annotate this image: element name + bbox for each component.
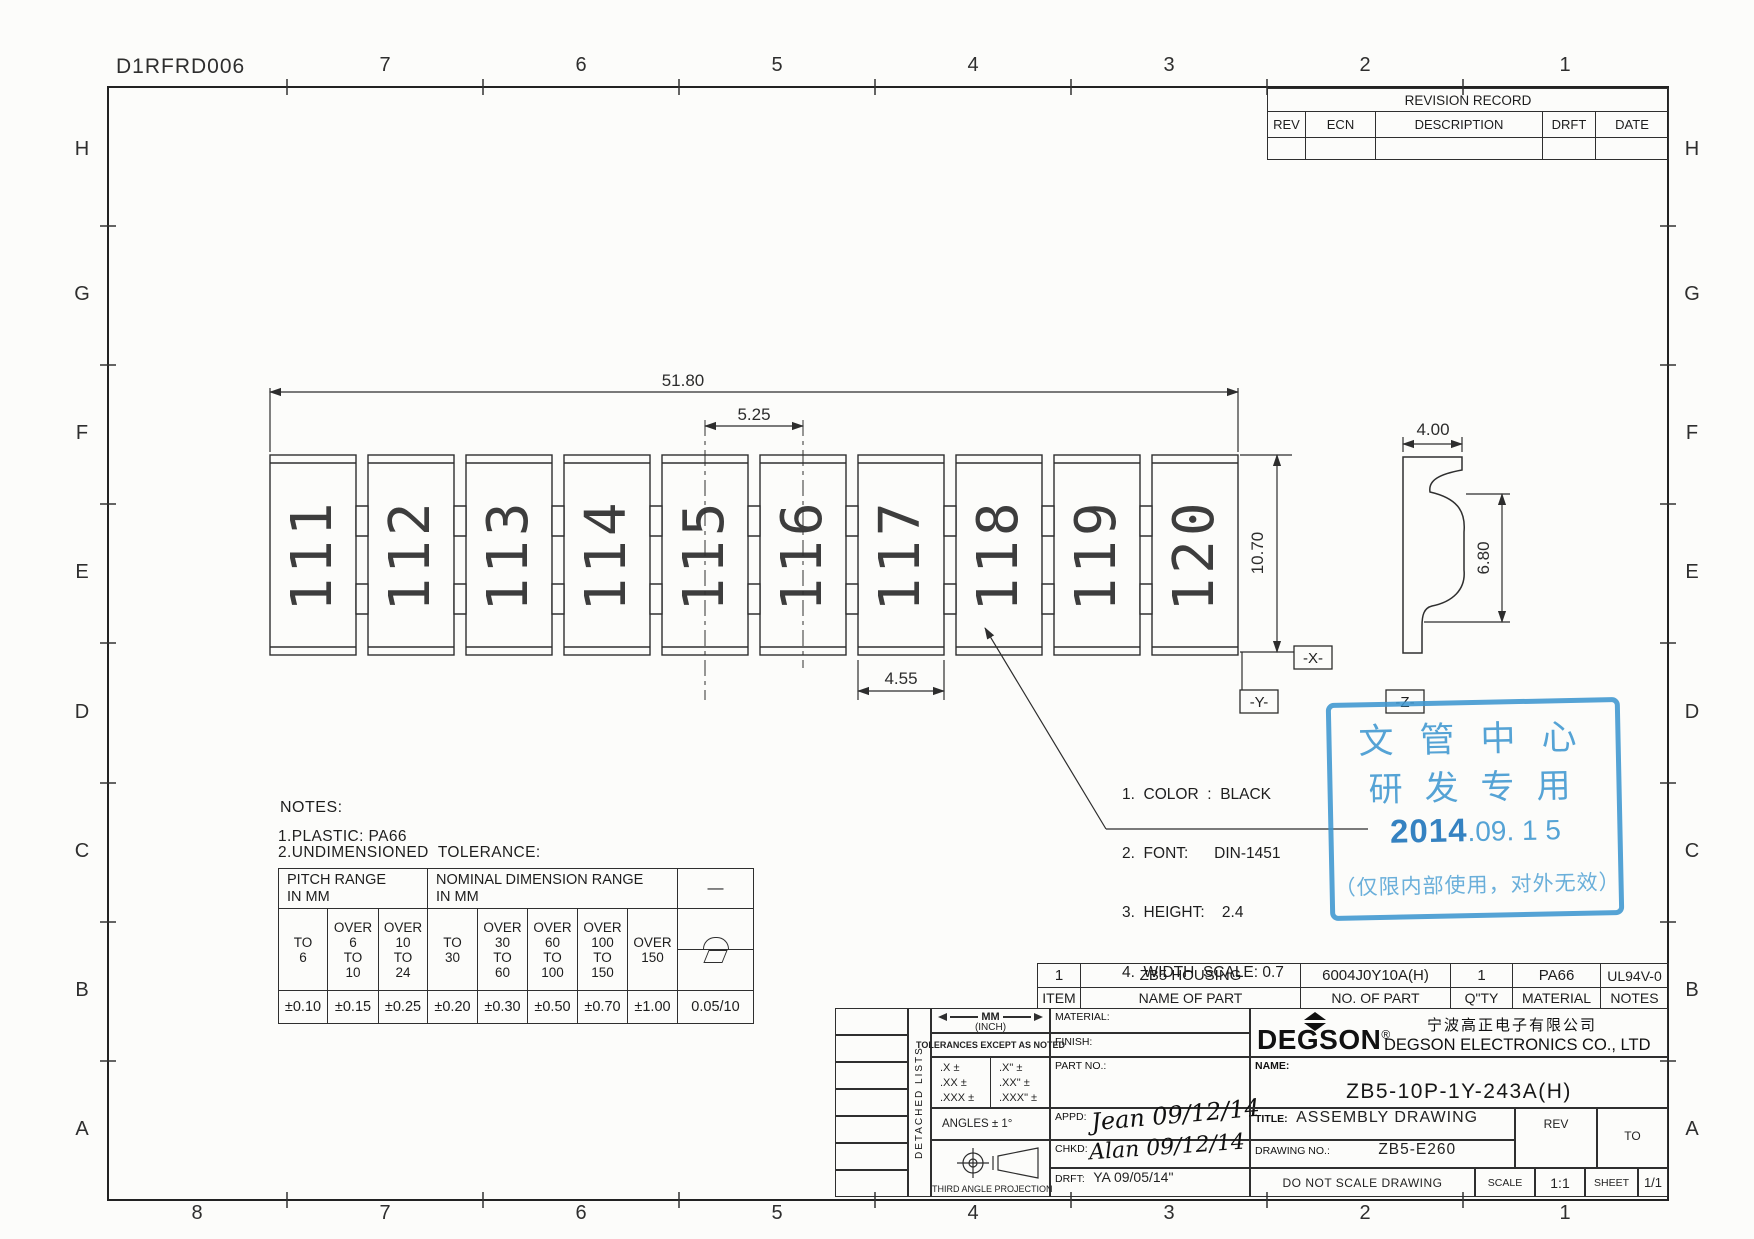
dim-side-width: 4.00 [1378,420,1488,440]
description-cell-empty [1376,138,1543,160]
stamp-date: 2014.09. 1 5 [1333,808,1618,852]
zone-letter-right: C [1672,840,1712,863]
dim-range: OVER 150 [628,909,678,991]
zone-letter-left: C [62,840,102,863]
date-cell-empty [1596,138,1669,160]
datum-y-label: -Y- [1250,694,1269,711]
title-label: TITLE: [1251,1111,1292,1127]
dim-range: OVER 100 TO 150 [578,909,628,991]
detached-list-row [835,1170,908,1197]
dim-pitch: 5.25 [699,405,809,425]
detached-lists-strip: DETACHED LISTS [908,1008,931,1197]
notes-title: NOTES: [280,799,343,817]
no-of-part-header: NO. OF PART [1301,988,1451,1009]
zone-number-bottom: 7 [365,1202,405,1225]
drawing-sheet: 111 112 113 114 115 116 117 118 119 120 [0,0,1754,1239]
do-not-scale-note: DO NOT SCALE DRAWING [1282,1176,1442,1190]
dim-block-width: 4.55 [846,669,956,689]
name-label: NAME: [1251,1058,1667,1074]
side-profile-view [1403,457,1464,653]
nominal-range-header: NOMINAL DIMENSION RANGE IN MM [428,869,678,909]
tolerance-value: ±0.20 [428,991,478,1024]
tolerance-value: ±0.70 [578,991,628,1024]
straightness-dash-symbol: — [678,869,754,909]
tolerance-table: PITCH RANGE IN MM NOMINAL DIMENSION RANG… [278,868,754,1024]
tolerance-value: ±0.50 [528,991,578,1024]
tolerances-note: TOLERANCES EXCEPT AS NOTED [916,1040,1065,1050]
sheet-value: 1/1 [1644,1175,1662,1190]
detached-list-row [835,1089,908,1116]
tolerance-value: ±1.00 [628,991,678,1024]
units-inch-label: (INCH) [932,1022,1049,1033]
drawing-title: ASSEMBLY DRAWING [1296,1109,1478,1126]
stamp-line-2: 研发专用 [1332,757,1617,812]
material-header: MATERIAL [1513,988,1601,1009]
zone-number-top: 7 [365,54,405,77]
scale-label: SCALE [1488,1177,1522,1189]
material-label: MATERIAL: [1051,1009,1249,1025]
block-number: 112 [378,498,443,611]
dim-total-width: 51.80 [628,371,738,391]
brand-name: DEGSON® [1257,1024,1391,1056]
drawing-no-cell: DRAWING NO.: ZB5-E260 [1250,1140,1515,1168]
part-material: PA66 [1513,964,1601,988]
block-number: 113 [476,498,541,611]
zone-letter-left: F [62,422,102,445]
block-number: 111 [280,498,345,611]
sheet-label: SHEET [1594,1177,1629,1189]
document-number: D1RFRD006 [116,55,245,79]
zone-letter-left: G [62,283,102,306]
ecn-cell-empty [1306,138,1376,160]
zone-number-bottom: 3 [1149,1202,1189,1225]
ecn-col-header: ECN [1306,112,1376,138]
drft-label: DRFT: [1051,1171,1089,1187]
tolerance-value: ±0.30 [478,991,528,1024]
zone-number-bottom: 8 [177,1202,217,1225]
drft-col-header: DRFT [1543,112,1596,138]
part-notes: UL94V-0 [1601,964,1669,988]
decimal-tolerances-cell: .X ± .XX ± .XXX ± .X" ± .XX" ± .XXX" ± [931,1057,1050,1108]
projection-cell: THIRD ANGLE PROJECTION [931,1140,1050,1197]
notes-header: NOTES [1601,988,1669,1009]
detached-list-row [835,1008,908,1035]
stamp-line-1: 文管中心 [1331,708,1616,765]
chkd-cell: CHKD: Alan 09/12/14 [1050,1140,1250,1168]
zone-number-bottom: 1 [1545,1202,1585,1225]
part-name: ZB5 HOUSING [1081,964,1301,988]
zone-letter-left: A [62,1118,102,1141]
zone-number-top: 4 [953,54,993,77]
block-number: 118 [966,498,1031,611]
detached-list-row [835,1143,908,1170]
company-cell: DEGSON® 宁波高正电子有限公司 DEGSON ELECTRONICS CO… [1250,1008,1668,1057]
block-number: 114 [574,498,639,611]
zone-letter-left: H [62,138,102,161]
zone-letter-right: A [1672,1118,1712,1141]
part-item: 1 [1038,964,1081,988]
drft-cell-empty [1543,138,1596,160]
tolerance-mm-list: .X ± .XX ± .XXX ± [932,1058,990,1107]
zone-letter-right: G [1672,283,1712,306]
zone-letter-right: H [1672,138,1712,161]
zone-letter-left: B [62,979,102,1002]
zone-number-top: 6 [561,54,601,77]
drawing-no-label: DRAWING NO.: [1251,1143,1334,1159]
detached-lists-label: DETACHED LISTS [909,1009,930,1196]
stamp-date-year: 2014 [1390,811,1468,850]
detached-list-row [835,1062,908,1089]
arrow-left-icon [938,1013,947,1021]
zone-number-top: 2 [1345,54,1385,77]
company-name-en: DEGSON ELECTRONICS CO., LTD [1384,1036,1650,1055]
dim-side-height: 6.80 [1474,530,1494,586]
pitch-range: OVER 6 TO 10 [328,909,379,991]
description-col-header: DESCRIPTION [1376,112,1543,138]
zone-number-bottom: 6 [561,1202,601,1225]
zone-number-bottom: 4 [953,1202,993,1225]
zone-number-top: 5 [757,54,797,77]
rev-cell-empty [1268,138,1306,160]
stamp-note: （仅限内部使用，对外无效） [1334,866,1619,902]
name-of-part-header: NAME OF PART [1081,988,1301,1009]
approval-stamp: 文管中心 研发专用 2014.09. 1 5 （仅限内部使用，对外无效） [1326,697,1625,921]
tolerance-value: ±0.25 [379,991,428,1024]
detached-list-row [835,1116,908,1143]
arc-symbol-icon [703,937,729,949]
rev-box: REV [1515,1108,1597,1168]
revision-record-title: REVISION RECORD [1268,89,1669,112]
title-cell: TITLE: ASSEMBLY DRAWING [1250,1108,1515,1140]
pitch-range: TO 6 [279,909,328,991]
stamp-date-rest: .09. 1 5 [1467,814,1561,847]
drawing-no-value: ZB5-E260 [1378,1141,1456,1158]
dim-range: OVER 60 TO 100 [528,909,578,991]
tolerance-value: 0.05/10 [678,991,754,1024]
dim-height: 10.70 [1248,525,1268,581]
zone-number-top: 3 [1149,54,1189,77]
drft-value: YA 09/05/14" [1093,1169,1173,1185]
drft-cell: DRFT: YA 09/05/14" [1050,1168,1250,1197]
dim-range: OVER 30 TO 60 [478,909,528,991]
zone-letter-left: D [62,701,102,724]
date-col-header: DATE [1596,112,1669,138]
qty-header: Q"TY [1451,988,1513,1009]
zone-letter-right: E [1672,561,1712,584]
zone-letter-right: F [1672,422,1712,445]
detached-list-row [835,1035,908,1062]
company-name-cn: 宁波高正电子有限公司 [1427,1014,1597,1035]
dim-range: TO 30 [428,909,478,991]
part-qty: 1 [1451,964,1513,988]
part-number: 6004J0Y10A(H) [1301,964,1451,988]
zone-letter-right: D [1672,701,1712,724]
finish-label: FINISH: [1051,1034,1249,1050]
datum-x-label: -X- [1303,650,1323,667]
zone-number-bottom: 2 [1345,1202,1385,1225]
projection-label: THIRD ANGLE PROJECTION [932,1184,1049,1194]
parts-list-table: 1 ZB5 HOUSING 6004J0Y10A(H) 1 PA66 UL94V… [1037,963,1669,1009]
part-no-label: PART NO.: [1051,1058,1249,1074]
zone-number-top: 1 [1545,54,1585,77]
notes-line-2: 2.UNDIMENSIONED TOLERANCE: [278,844,541,862]
block-number: 117 [868,498,933,611]
to-box: TO [1597,1108,1668,1168]
angles-tolerance: ANGLES ± 1° [932,1118,1012,1130]
item-header: ITEM [1038,988,1081,1009]
tolerance-inch-list: .X" ± .XX" ± .XXX" ± [990,1058,1049,1107]
pitch-range-header: PITCH RANGE IN MM [279,869,428,909]
product-name: ZB5-10P-1Y-243A(H) [1251,1080,1667,1104]
block-number: 119 [1064,498,1129,611]
revision-record-table: REVISION RECORD REV ECN DESCRIPTION DRFT… [1267,88,1669,160]
tolerance-value: ±0.10 [279,991,328,1024]
zone-number-bottom: 5 [757,1202,797,1225]
rev-box-label: REV [1516,1109,1596,1131]
units-cell: MM (INCH) [931,1008,1050,1033]
block-number: 120 [1162,498,1227,611]
scale-value: 1:1 [1550,1175,1569,1191]
arrow-right-icon [1034,1013,1043,1021]
zone-letter-right: B [1672,979,1712,1002]
to-box-label: TO [1598,1109,1667,1143]
pitch-range: OVER 10 TO 24 [379,909,428,991]
rev-col-header: REV [1268,112,1306,138]
name-cell: NAME: ZB5-10P-1Y-243A(H) [1250,1057,1668,1108]
tolerance-value: ±0.15 [328,991,379,1024]
parallelogram-symbol-icon [703,950,727,963]
zone-letter-left: E [62,561,102,584]
